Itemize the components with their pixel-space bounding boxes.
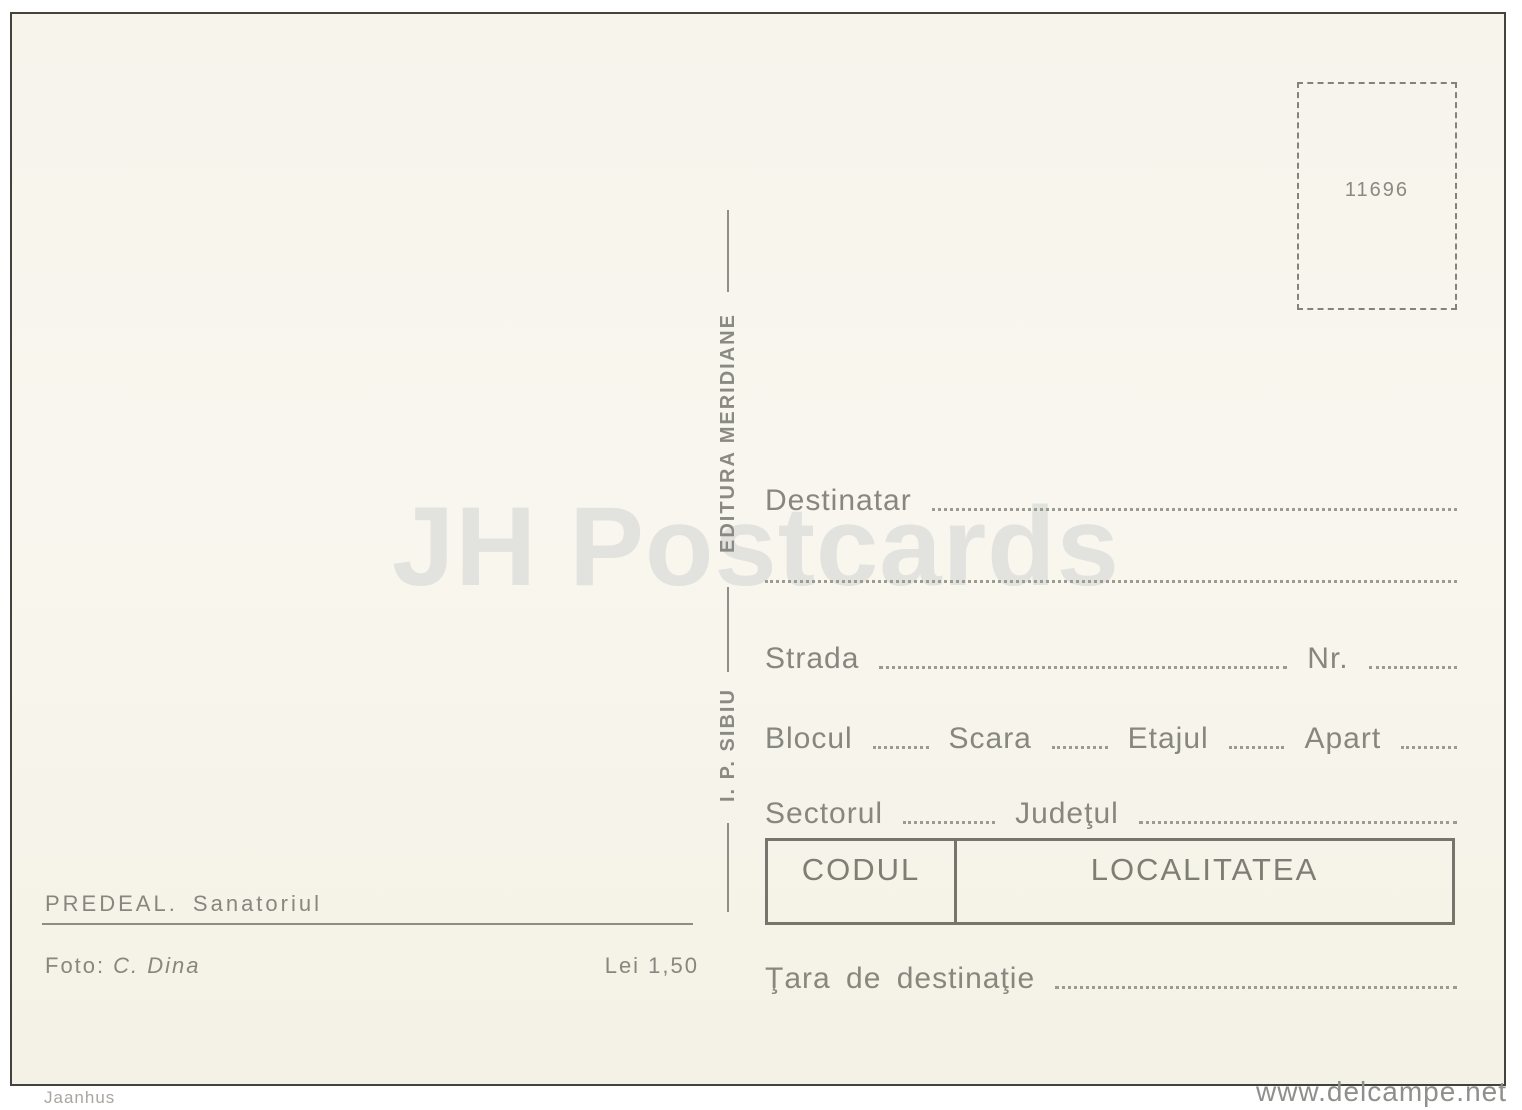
localitatea-label: LOCALITATEA <box>1091 852 1319 888</box>
codul-label: CODUL <box>802 852 921 888</box>
judetul-dotted-line <box>1139 821 1457 824</box>
blocul-label: Blocul <box>765 722 853 756</box>
tara-row: Ţara de destinaţie <box>765 962 1457 996</box>
photo-credit: Foto:C. Dina <box>45 953 201 979</box>
seller-watermark: Jaanhus <box>44 1088 115 1108</box>
strada-row: Strada Nr. <box>765 642 1457 676</box>
divider-rule-bottom <box>727 823 729 912</box>
delcampe-watermark: www.delcampe.net <box>1256 1076 1507 1108</box>
destinatar-row: Destinatar <box>765 484 1457 518</box>
photo-credit-label: Foto: <box>45 953 105 978</box>
printer-name: I. P. SIBIU <box>717 680 740 810</box>
caption-divider-rule <box>42 923 693 925</box>
divider-rule-top <box>727 210 729 292</box>
judetul-label: Judeţul <box>1015 797 1119 831</box>
publisher-name: EDITURA MERIDIANE <box>717 310 740 557</box>
publisher-strip: EDITURA MERIDIANE I. P. SIBIU <box>713 210 743 912</box>
nr-label: Nr. <box>1307 642 1348 676</box>
codul-cell: CODUL <box>768 841 957 922</box>
apart-label: Apart <box>1304 722 1381 756</box>
destinatar-dotted-line <box>932 508 1457 511</box>
code-locality-table: CODUL LOCALITATEA <box>765 838 1455 925</box>
stamp-box: 11696 <box>1297 82 1457 310</box>
postcard-scan: JH Postcards EDITURA MERIDIANE I. P. SIB… <box>10 12 1506 1086</box>
screenshot-stage: JH Postcards EDITURA MERIDIANE I. P. SIB… <box>0 0 1522 1110</box>
scara-dotted-line <box>1052 746 1108 749</box>
localitatea-cell: LOCALITATEA <box>957 841 1452 922</box>
destinatar-second-dotted-line <box>765 580 1457 583</box>
etajul-dotted-line <box>1229 746 1285 749</box>
sectorul-dotted-line <box>903 821 995 824</box>
tara-dotted-line <box>1055 986 1457 989</box>
strada-dotted-line <box>879 666 1287 669</box>
caption-credit-row: Foto:C. Dina Lei 1,50 <box>45 953 699 979</box>
etajul-label: Etajul <box>1128 722 1209 756</box>
sectorul-row: Sectorul Judeţul <box>765 797 1457 831</box>
destinatar-label: Destinatar <box>765 484 912 518</box>
strada-label: Strada <box>765 642 859 676</box>
blocul-row: Blocul Scara Etajul Apart <box>765 722 1457 756</box>
apart-dotted-line <box>1401 746 1457 749</box>
sectorul-label: Sectorul <box>765 797 883 831</box>
catalog-number: 11696 <box>1345 179 1409 202</box>
scara-label: Scara <box>949 722 1032 756</box>
caption-title: PREDEAL. Sanatoriul <box>45 891 322 917</box>
nr-dotted-line <box>1369 666 1457 669</box>
blocul-dotted-line <box>873 746 929 749</box>
price-label: Lei 1,50 <box>605 953 699 979</box>
tara-label: Ţara de destinaţie <box>765 962 1035 996</box>
photographer-name: C. Dina <box>113 953 200 978</box>
divider-rule-middle <box>727 587 729 672</box>
